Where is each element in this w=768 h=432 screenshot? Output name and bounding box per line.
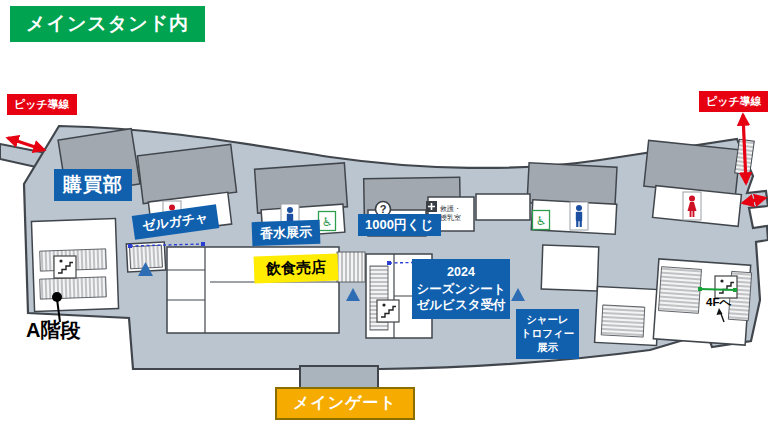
season-seat-line3: ゼルビスタ受付 — [412, 297, 510, 314]
to-4f-label: 4Fへ — [706, 296, 731, 308]
trophy-line3: 展示 — [516, 341, 579, 355]
season-seat-line2: シーズンシート — [412, 281, 510, 298]
stadium-floor-map: ♿ ♿ ? 救護・ 授乳室 — [0, 0, 768, 432]
season-seat-label: 2024 シーズンシート ゼルビスタ受付 — [412, 259, 510, 319]
main-gate-label: メインゲート — [275, 387, 415, 420]
first-aid-label: 救護・ — [439, 205, 461, 213]
trophy-line2: トロフィー — [516, 327, 579, 341]
a-stairs-label: A階段 — [26, 317, 80, 344]
lottery-label: 1000円くじ — [358, 214, 441, 236]
first-aid-icon — [426, 201, 437, 212]
nursing-label: 授乳室 — [440, 214, 461, 222]
pitch-route-label-right: ピッチ導線 — [699, 91, 768, 112]
perfume-exhibit-label: 香水展示 — [252, 220, 321, 246]
trophy-line1: シャーレ — [516, 313, 579, 327]
food-stall-label: 飲食売店 — [254, 254, 339, 284]
page-title: メインスタンド内 — [10, 6, 205, 42]
season-seat-line1: 2024 — [412, 264, 510, 281]
svg-text:♿: ♿ — [536, 214, 547, 228]
pitch-route-label-left: ピッチ導線 — [7, 94, 77, 115]
trophy-exhibit-label: シャーレ トロフィー 展示 — [516, 309, 579, 359]
svg-text:♿: ♿ — [322, 215, 333, 229]
purchase-dept-label: 購買部 — [54, 169, 132, 201]
